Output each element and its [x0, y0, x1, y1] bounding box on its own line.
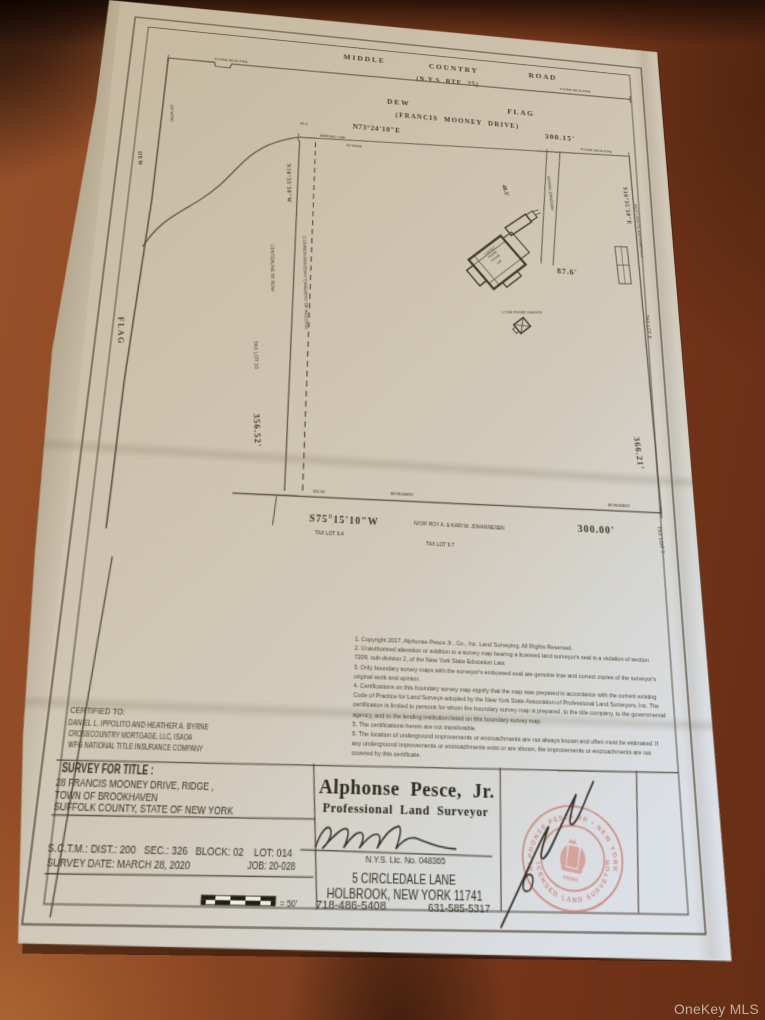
svg-text:1 CAR FRAME GARAGE: 1 CAR FRAME GARAGE — [502, 310, 544, 315]
svg-text:DEW: DEW — [136, 151, 143, 166]
svg-text:Alphonse Pesce, Jr.: Alphonse Pesce, Jr. — [319, 775, 495, 802]
svg-text:5 CIRCLEDALE LANE: 5 CIRCLEDALE LANE — [352, 872, 457, 888]
svg-text:FLAG: FLAG — [116, 317, 126, 345]
svg-text:300.00': 300.00' — [577, 522, 615, 536]
svg-text:TAX LOT 10: TAX LOT 10 — [253, 341, 260, 370]
svg-text:SURVEY DATE: MARCH 28, 2020: SURVEY DATE: MARCH 28, 2020 — [46, 856, 191, 873]
svg-text:CENTERLINE 50' ROW: CENTERLINE 50' ROW — [270, 244, 276, 291]
svg-text:N16°35'50"W: N16°35'50"W — [285, 164, 293, 204]
svg-text:36.4': 36.4' — [300, 122, 309, 127]
svg-text:718-486-5408: 718-486-5408 — [315, 898, 387, 914]
svg-text:(50' WIDE): (50' WIDE) — [169, 104, 174, 122]
svg-text:CERTIFIED TO:: CERTIFIED TO: — [69, 707, 125, 718]
svg-text:N.Y.S. Lic. No. 048365: N.Y.S. Lic. No. 048365 — [365, 857, 445, 868]
svg-text:161.55: 161.55 — [312, 489, 325, 495]
svg-text:JOB: 20-028: JOB: 20-028 — [247, 859, 296, 874]
svg-text:87.6': 87.6' — [557, 266, 578, 277]
svg-text:= 50': = 50' — [280, 901, 298, 911]
svg-text:631-585-5317: 631-585-5317 — [428, 901, 490, 916]
svg-text:356.52': 356.52' — [251, 413, 263, 447]
